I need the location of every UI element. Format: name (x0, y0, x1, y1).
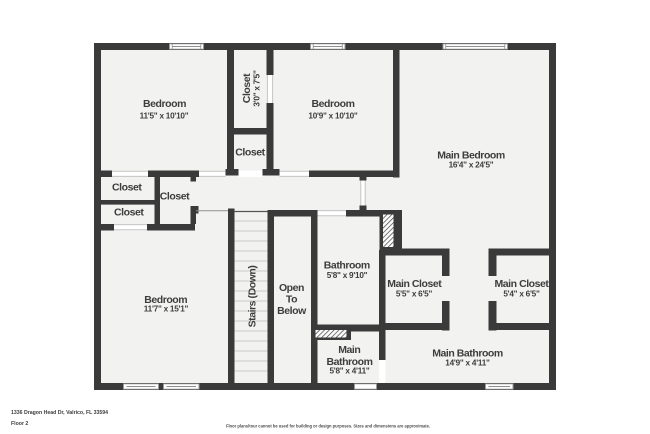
svg-text:16'4" x 24'5": 16'4" x 24'5" (449, 161, 494, 170)
svg-text:3'0" x 7'5": 3'0" x 7'5" (253, 70, 262, 107)
svg-text:Main Closet: Main Closet (495, 278, 550, 290)
svg-text:Main: Main (338, 344, 360, 356)
svg-text:10'9" x 10'10": 10'9" x 10'10" (308, 111, 358, 120)
svg-text:Closet: Closet (114, 207, 144, 219)
svg-text:5'5" x 6'5": 5'5" x 6'5" (396, 290, 433, 299)
svg-text:Bedroom: Bedroom (312, 98, 355, 110)
svg-text:To: To (286, 294, 297, 306)
svg-text:Bedroom: Bedroom (143, 98, 186, 110)
svg-text:Closet: Closet (235, 147, 265, 159)
svg-text:1336 Dragon Head Dr, Valrico,: 1336 Dragon Head Dr, Valrico, FL 33594 (11, 410, 108, 416)
svg-text:11'5" x 10'10": 11'5" x 10'10" (140, 111, 189, 120)
svg-text:Bathroom: Bathroom (324, 259, 370, 271)
svg-text:Below: Below (277, 305, 307, 317)
svg-text:14'9" x 4'11": 14'9" x 4'11" (445, 359, 490, 368)
svg-text:5'4" x 6'5": 5'4" x 6'5" (503, 290, 540, 299)
svg-text:Stairs (Down): Stairs (Down) (247, 266, 259, 328)
svg-text:Floor 2: Floor 2 (11, 421, 28, 427)
svg-text:11'7" x 15'1": 11'7" x 15'1" (144, 305, 189, 314)
svg-text:5'8" x 9'10": 5'8" x 9'10" (327, 271, 368, 280)
svg-text:5'8" x 4'11": 5'8" x 4'11" (329, 366, 369, 375)
svg-text:Main Closet: Main Closet (387, 278, 442, 290)
svg-text:Closet: Closet (112, 181, 142, 193)
svg-text:Open: Open (279, 282, 304, 294)
svg-text:Closet: Closet (241, 73, 253, 103)
svg-text:Floor plans/tour cannot be use: Floor plans/tour cannot be used for buil… (226, 423, 430, 428)
svg-text:Closet: Closet (160, 191, 190, 203)
